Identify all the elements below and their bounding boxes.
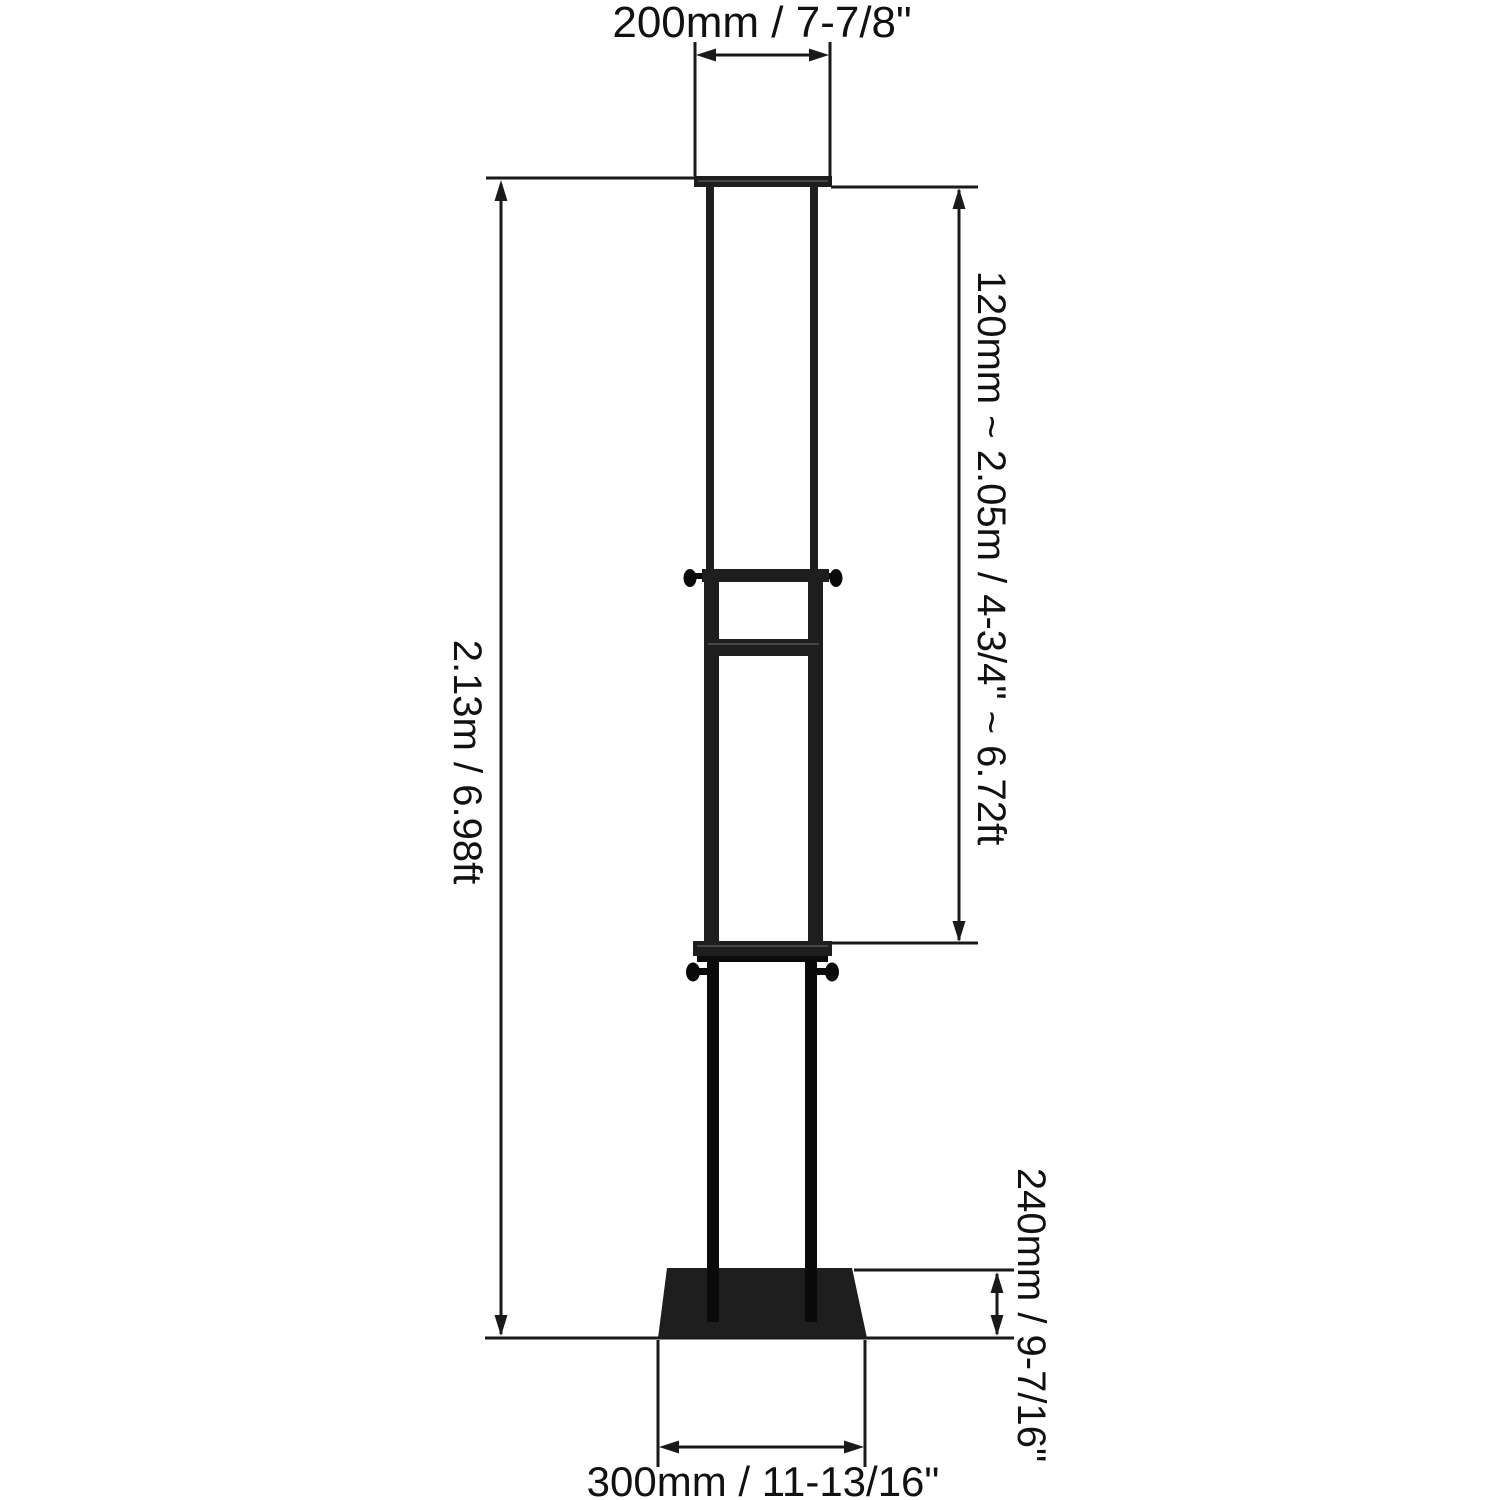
arrowhead-up-icon [953,188,966,209]
arrowhead-down-icon [953,921,966,942]
dim-base-depth: 240mm / 9-7/16" [854,1168,1053,1462]
upper-knob-left [684,569,697,587]
dim-base-depth-label: 240mm / 9-7/16" [1009,1168,1053,1462]
arrowhead-down-icon [991,1315,1004,1336]
middle-crossbar-highlight [708,643,819,645]
lower-bracket-shelf [693,941,832,956]
arrowhead-left-icon [696,49,716,62]
dim-base-width: 300mm / 11-13/16" [587,1340,940,1500]
top-plate-highlight [698,180,828,182]
lower-pole-left [707,957,719,1322]
lower-knob-right [825,963,839,982]
base-plate [658,1268,867,1338]
outer-tube-left [704,569,719,945]
lower-pole-right [805,957,817,1322]
lower-knob-left [686,963,700,982]
middle-crossbar [704,639,823,656]
dim-top-width: 200mm / 7-7/8" [612,0,911,186]
arrowhead-right-icon [844,1441,864,1454]
arrowhead-up-icon [495,180,508,201]
display-stand [658,176,867,1338]
dim-overall-height: 2.13m / 6.98ft [445,178,1014,1338]
dim-adjustable-height-label: 120mm ~ 2.05m / 4-3/4" ~ 6.72ft [969,271,1013,846]
upper-knob-right [830,569,843,587]
arrowhead-up-icon [991,1272,1004,1293]
arrowhead-left-icon [659,1441,679,1454]
outer-tube-right [808,569,823,945]
arrowhead-right-icon [809,49,829,62]
dimension-diagram: 200mm / 7-7/8" 2.13m / 6.98ft 120mm ~ 2.… [0,0,1500,1500]
upper-pole-right [810,187,818,570]
dim-overall-height-label: 2.13m / 6.98ft [445,640,489,885]
dim-top-width-label: 200mm / 7-7/8" [612,0,911,47]
upper-pole-left [706,187,714,570]
lower-bracket-highlight [697,945,828,947]
dim-base-width-label: 300mm / 11-13/16" [587,1458,940,1500]
arrowhead-down-icon [495,1315,508,1336]
dim-adjustable-height: 120mm ~ 2.05m / 4-3/4" ~ 6.72ft [831,187,1013,943]
